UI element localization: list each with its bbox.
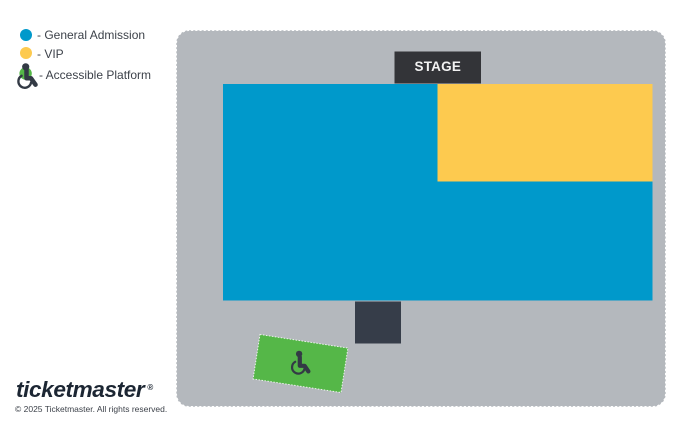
svg-text:STAGE: STAGE bbox=[415, 59, 462, 74]
